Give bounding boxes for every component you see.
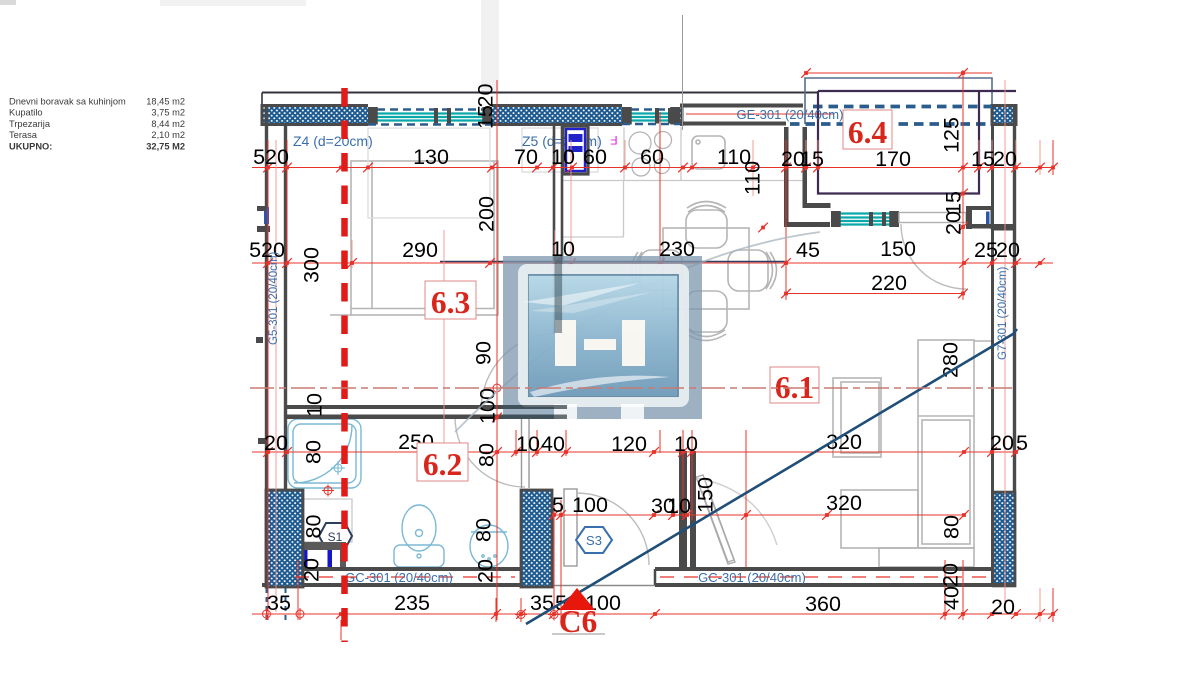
svg-text:2,10 m2: 2,10 m2 [151, 130, 185, 140]
svg-text:10: 10 [516, 432, 540, 456]
svg-text:290: 290 [402, 238, 438, 262]
svg-text:35: 35 [530, 591, 554, 615]
svg-text:90: 90 [472, 341, 496, 365]
svg-text:120: 120 [611, 432, 647, 456]
svg-text:15: 15 [800, 147, 824, 171]
svg-text:200: 200 [475, 196, 499, 232]
svg-text:32,75 M2: 32,75 M2 [146, 141, 185, 151]
svg-text:20: 20 [264, 431, 288, 455]
svg-text:15: 15 [474, 105, 498, 129]
svg-text:G7-301 (20/40cm): G7-301 (20/40cm) [997, 267, 1009, 360]
svg-text:80: 80 [472, 518, 496, 542]
svg-text:70: 70 [514, 145, 538, 169]
svg-text:20: 20 [996, 238, 1020, 262]
svg-text:170: 170 [875, 147, 911, 171]
svg-text:20: 20 [993, 147, 1017, 171]
svg-text:360: 360 [805, 592, 841, 616]
svg-text:S3: S3 [586, 533, 602, 548]
svg-text:Dnevni boravak sa kuhinjom: Dnevni boravak sa kuhinjom [9, 97, 126, 107]
svg-text:20: 20 [474, 559, 498, 583]
svg-text:F: F [610, 133, 617, 147]
svg-text:150: 150 [880, 237, 916, 261]
svg-text:60: 60 [583, 145, 607, 169]
svg-text:20: 20 [942, 211, 966, 235]
svg-text:5: 5 [1016, 431, 1028, 455]
svg-text:125: 125 [940, 117, 964, 153]
svg-text:235: 235 [394, 591, 430, 615]
svg-text:15: 15 [971, 147, 995, 171]
svg-text:UKUPNO:: UKUPNO: [9, 141, 52, 151]
svg-text:GC-301 (20/40cm): GC-301 (20/40cm) [698, 570, 806, 585]
svg-text:80: 80 [475, 443, 499, 467]
svg-text:6.3: 6.3 [431, 285, 470, 320]
svg-text:20: 20 [939, 563, 963, 587]
svg-text:5: 5 [552, 493, 564, 517]
svg-text:80: 80 [302, 515, 326, 539]
svg-text:80: 80 [302, 440, 326, 464]
svg-text:Terasa: Terasa [9, 130, 38, 140]
svg-text:10: 10 [674, 432, 698, 456]
svg-text:20: 20 [990, 431, 1014, 455]
svg-text:3,75 m2: 3,75 m2 [151, 108, 185, 118]
svg-text:10: 10 [667, 494, 691, 518]
svg-text:520: 520 [253, 145, 289, 169]
svg-text:40: 40 [541, 432, 565, 456]
svg-text:150: 150 [694, 477, 718, 513]
svg-text:Trpezarija: Trpezarija [9, 119, 51, 129]
svg-text:220: 220 [871, 271, 907, 295]
svg-text:45: 45 [796, 238, 820, 262]
svg-text:GC-301 (20/40cm): GC-301 (20/40cm) [345, 570, 453, 585]
svg-text:110: 110 [741, 161, 765, 195]
svg-text:S1: S1 [328, 530, 343, 544]
svg-text:35: 35 [267, 591, 291, 615]
svg-text:300: 300 [300, 247, 324, 283]
svg-text:6.4: 6.4 [848, 115, 888, 150]
svg-text:20: 20 [474, 84, 498, 108]
svg-text:40: 40 [940, 586, 964, 610]
svg-text:GE-301 (20/40cm): GE-301 (20/40cm) [737, 107, 844, 122]
svg-text:10: 10 [303, 393, 327, 417]
svg-text:25: 25 [974, 238, 998, 262]
svg-text:320: 320 [826, 491, 862, 515]
svg-text:G5-301 (20/40cm): G5-301 (20/40cm) [268, 252, 280, 345]
svg-text:18,45 m2: 18,45 m2 [146, 97, 185, 107]
svg-text:100: 100 [572, 493, 608, 517]
svg-text:130: 130 [413, 145, 449, 169]
svg-text:10: 10 [551, 145, 575, 169]
svg-text:20: 20 [300, 558, 324, 582]
svg-text:8,44 m2: 8,44 m2 [151, 119, 185, 129]
svg-text:60: 60 [640, 145, 664, 169]
svg-text:20: 20 [991, 595, 1015, 619]
svg-text:Z4 (d=20cm): Z4 (d=20cm) [293, 133, 373, 149]
svg-text:80: 80 [940, 515, 964, 539]
svg-text:Kupatilo: Kupatilo [9, 108, 43, 118]
svg-text:6.2: 6.2 [423, 447, 462, 482]
